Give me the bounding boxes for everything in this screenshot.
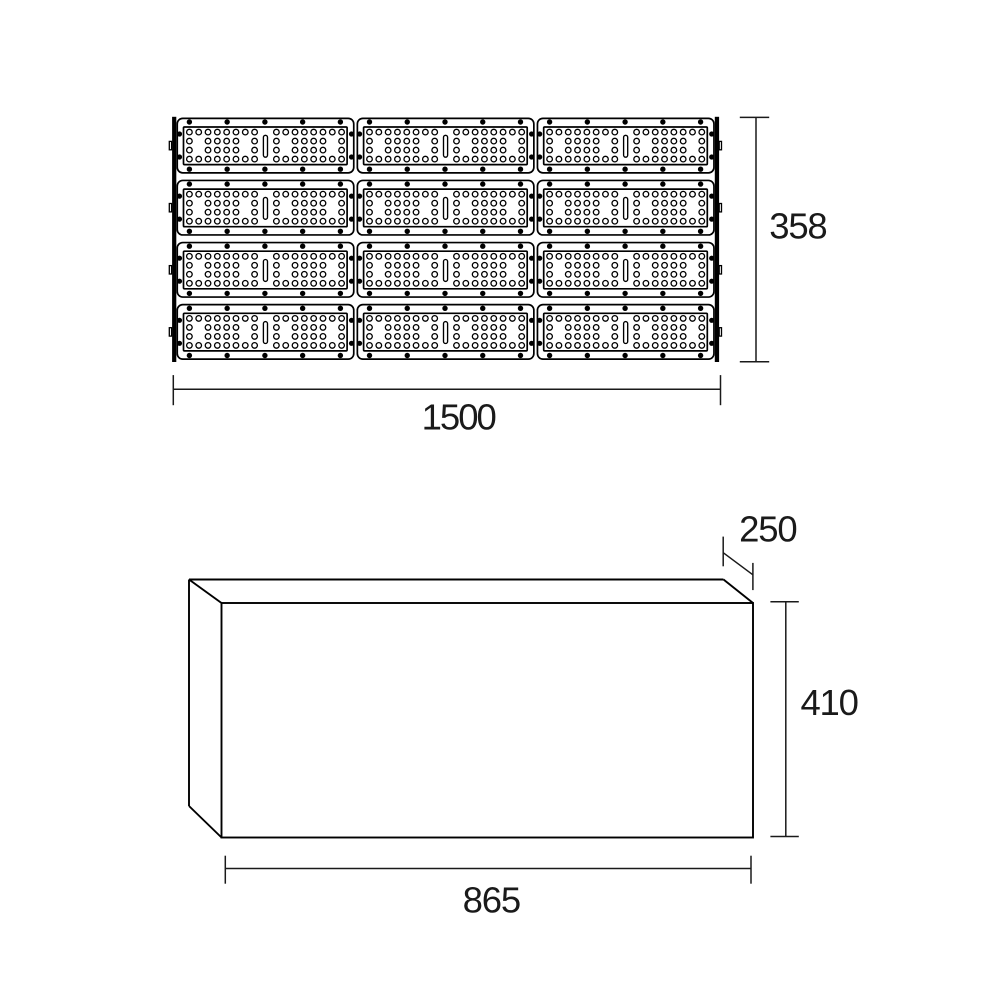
svg-text:410: 410 bbox=[800, 682, 857, 723]
svg-text:1500: 1500 bbox=[422, 397, 496, 438]
svg-text:250: 250 bbox=[739, 509, 796, 550]
svg-text:865: 865 bbox=[463, 880, 520, 921]
svg-text:358: 358 bbox=[769, 206, 826, 247]
